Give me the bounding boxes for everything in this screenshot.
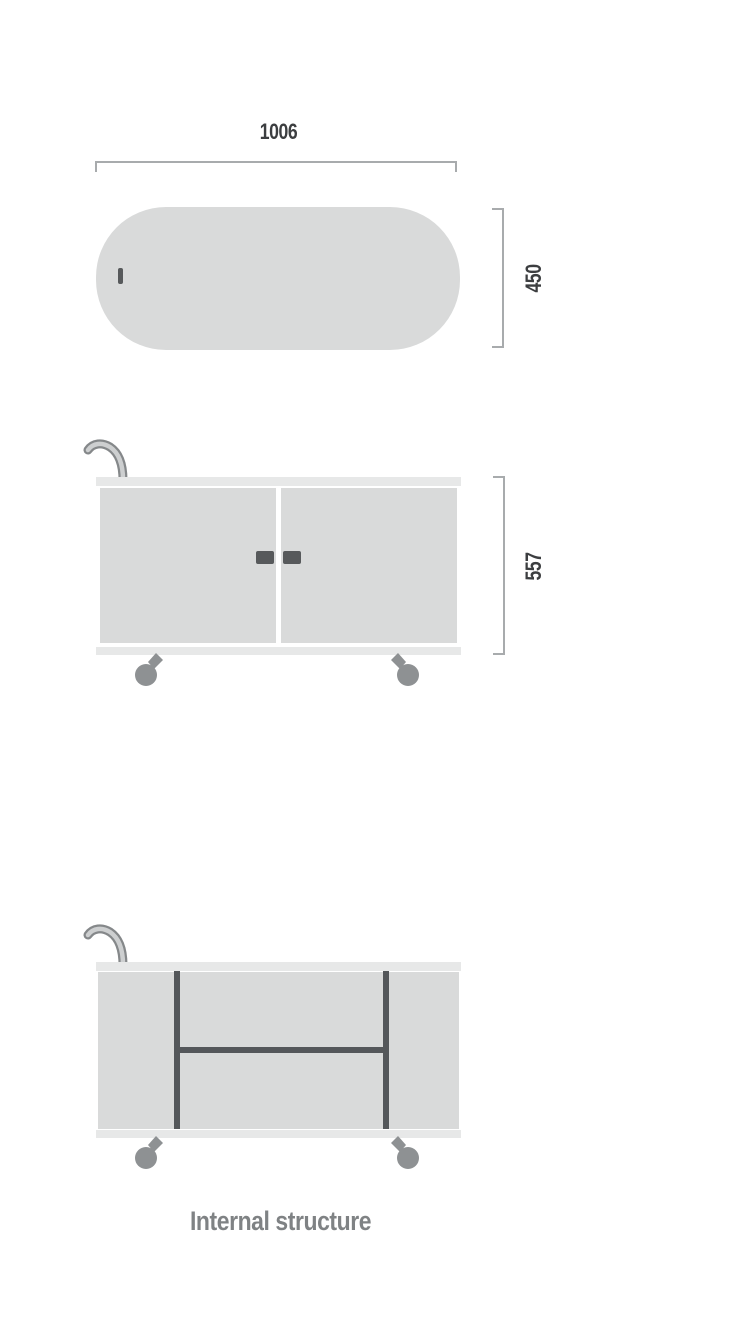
depth-dimension-value: 450 (521, 264, 547, 292)
bracket-tick (455, 163, 457, 172)
left-door-handle (256, 551, 274, 564)
right-door-handle (283, 551, 301, 564)
top-view-tabletop (96, 207, 460, 350)
handle-hook-icon (82, 919, 130, 965)
caption-text: Internal structure (190, 1206, 371, 1237)
depth-dimension-bracket (492, 208, 504, 348)
internal-shelf (174, 1047, 389, 1053)
right-door (281, 488, 457, 643)
front-view-body (96, 477, 461, 655)
bracket-tick (95, 163, 97, 172)
width-dimension-value: 1006 (259, 119, 297, 145)
top-view-width-dimension: 1006 (208, 119, 348, 145)
caster-icon (128, 1133, 170, 1171)
width-dimension-bracket (95, 161, 457, 173)
bracket-tick (493, 476, 503, 478)
bracket-tick (492, 346, 502, 348)
caster-icon (384, 1133, 426, 1171)
internal-structure-caption: Internal structure (106, 1205, 456, 1237)
bracket-tick (492, 208, 502, 210)
front-view-doors-area (100, 488, 457, 645)
top-view-handle-mark (118, 268, 123, 284)
caster-icon (384, 650, 426, 688)
caster-icon (128, 650, 170, 688)
handle-hook-icon (82, 434, 130, 480)
front-view-top-strip (96, 477, 461, 486)
internal-view-top-strip (96, 962, 461, 971)
height-dimension-bracket (493, 476, 505, 655)
dimension-drawing-canvas: 1006 450 557 (0, 0, 744, 1340)
left-door (100, 488, 276, 643)
height-dimension-value: 557 (521, 552, 547, 580)
front-view-height-dimension: 557 (521, 534, 547, 598)
bracket-tick (493, 653, 503, 655)
top-view-depth-dimension: 450 (521, 246, 547, 310)
